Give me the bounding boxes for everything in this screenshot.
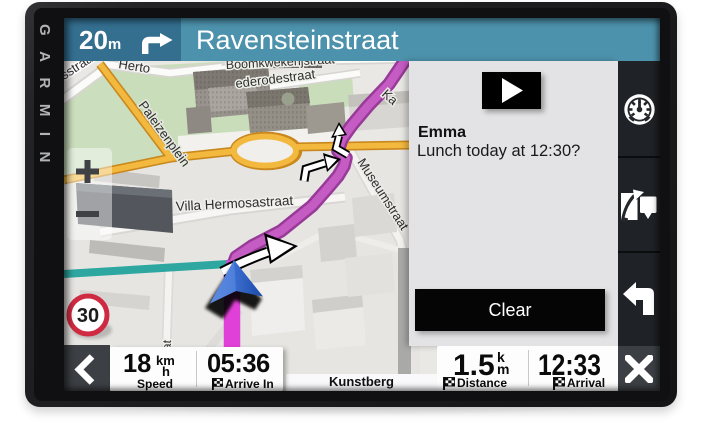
- svg-text:GARMIN: GARMIN: [36, 24, 53, 172]
